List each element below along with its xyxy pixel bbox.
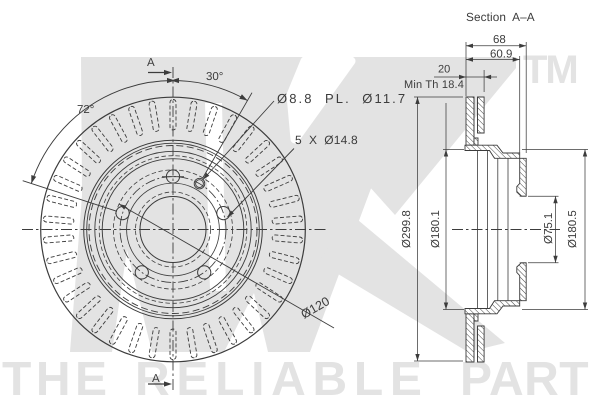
svg-text:A: A [147, 57, 155, 69]
svg-text:RELIABLE: RELIABLE [135, 353, 429, 400]
svg-text:60.9: 60.9 [490, 49, 512, 61]
svg-text:Ø75.1: Ø75.1 [543, 213, 555, 244]
svg-text:TM: TM [523, 48, 577, 92]
svg-text:5 X Ø14.8: 5 X Ø14.8 [295, 133, 358, 147]
svg-text:Section A–A: Section A–A [466, 10, 535, 24]
svg-text:30°: 30° [206, 71, 223, 83]
svg-text:THE: THE [2, 353, 112, 400]
svg-text:72°: 72° [77, 104, 94, 116]
svg-text:A: A [152, 373, 160, 385]
svg-text:Ø299.8: Ø299.8 [401, 210, 413, 248]
svg-text:Ø8.8 PL. Ø11.7: Ø8.8 PL. Ø11.7 [277, 91, 407, 106]
svg-text:Min Th 18.4: Min Th 18.4 [404, 79, 464, 91]
svg-text:68: 68 [493, 34, 506, 46]
svg-text:Ø180.1: Ø180.1 [430, 210, 442, 248]
svg-text:Ø180.5: Ø180.5 [567, 210, 579, 248]
svg-text:20: 20 [438, 64, 450, 76]
